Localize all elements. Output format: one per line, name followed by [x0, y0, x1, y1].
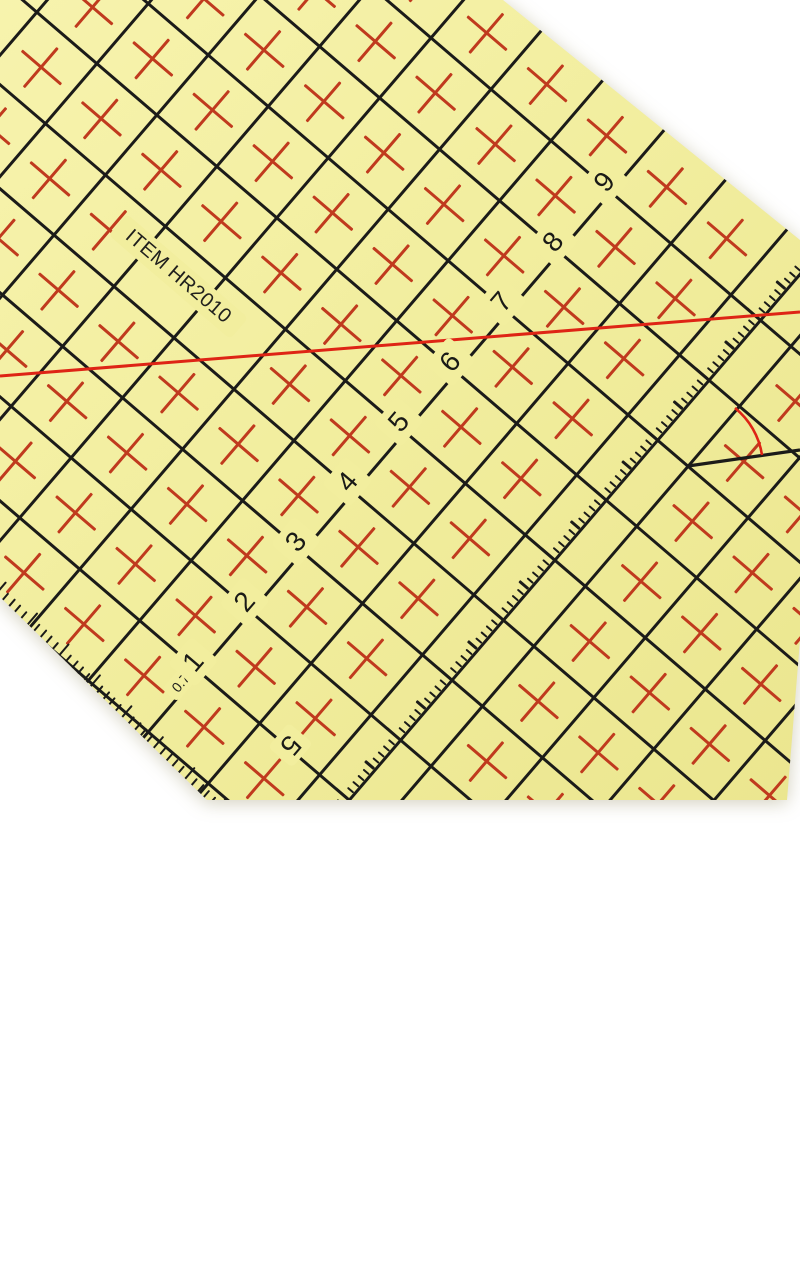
mm-tick	[254, 895, 261, 902]
cross-mark	[519, 887, 592, 960]
cross-mark	[536, 1110, 609, 1183]
cross-mark	[0, 647, 69, 720]
quilting-ruler: ITEM HR2010 0.7 5 987654321	[0, 0, 800, 800]
cross-mark	[741, 870, 800, 943]
mm-tick	[234, 919, 241, 926]
mm-tick	[270, 877, 277, 884]
mm-tick	[208, 949, 215, 956]
cross-mark	[690, 930, 763, 1003]
cross-mark	[793, 810, 800, 883]
mm-tick	[283, 847, 297, 860]
mm-tick	[198, 961, 205, 968]
cross-mark	[4, 759, 77, 832]
cross-mark	[527, 999, 600, 1072]
cross-mark	[639, 990, 712, 1063]
cross-mark	[587, 1050, 660, 1123]
mm-tick	[182, 979, 189, 986]
cross-mark	[579, 939, 652, 1012]
item-label: ITEM HR2010	[109, 214, 249, 339]
scale-number-8: 8	[528, 217, 579, 268]
mm-tick	[313, 820, 324, 829]
mm-tick	[311, 829, 318, 836]
cross-mark	[0, 596, 9, 669]
mm-tick	[210, 940, 221, 949]
cross-mark	[630, 879, 703, 952]
mm-tick	[321, 817, 328, 824]
mm-tick	[203, 955, 210, 962]
mm-tick	[232, 907, 246, 920]
mm-tick	[218, 937, 225, 944]
mm-tick	[301, 841, 308, 848]
cross-mark	[356, 956, 429, 1029]
scale-number-6: 6	[425, 337, 476, 388]
edge-tick	[219, 808, 229, 820]
cross-mark	[347, 845, 420, 918]
cross-mark	[304, 1016, 377, 1089]
mm-tick	[306, 835, 313, 842]
cross-mark	[124, 862, 197, 935]
scale-number-4: 4	[322, 457, 373, 508]
scale-number-3: 3	[271, 517, 322, 568]
cross-mark	[476, 1059, 549, 1132]
cross-mark	[484, 1170, 557, 1243]
cross-mark	[64, 810, 137, 883]
mm-tick	[295, 847, 302, 854]
mm-tick	[193, 967, 200, 974]
ruler-shadow-wrap: ITEM HR2010 0.7 5 987654321	[0, 0, 800, 800]
cross-mark	[424, 1119, 497, 1192]
mm-tick	[223, 931, 230, 938]
mm-tick	[285, 859, 292, 866]
scale-number-7: 7	[476, 277, 527, 328]
labels-layer: ITEM HR2010 0.7 5 987654321	[0, 0, 800, 1268]
mm-tick	[331, 805, 338, 812]
cross-mark	[570, 827, 643, 900]
cross-mark	[296, 905, 369, 978]
cross-mark	[416, 1007, 489, 1080]
mm-tick	[177, 985, 184, 992]
cross-mark	[244, 965, 317, 1038]
mm-tick	[244, 907, 251, 914]
bottom-scale-number: 5	[268, 723, 313, 768]
cross-mark	[364, 1067, 437, 1140]
scale-number-5: 5	[373, 397, 424, 448]
mm-tick	[261, 880, 272, 889]
scale-number-2: 2	[219, 576, 270, 627]
mm-tick	[275, 871, 282, 878]
cross-mark	[681, 819, 754, 892]
cross-mark	[0, 707, 18, 780]
cross-mark	[459, 836, 532, 909]
mm-tick	[229, 925, 236, 932]
mm-tick	[326, 811, 333, 818]
cross-mark	[467, 947, 540, 1020]
mm-tick	[181, 967, 195, 980]
mm-tick	[259, 889, 266, 896]
scale-number-9: 9	[579, 157, 630, 208]
cross-mark	[407, 896, 480, 969]
mm-tick	[280, 865, 287, 872]
photo-background: ITEM HR2010 0.7 5 987654321	[0, 0, 800, 800]
cross-mark	[176, 802, 249, 875]
mm-tick	[249, 901, 256, 908]
